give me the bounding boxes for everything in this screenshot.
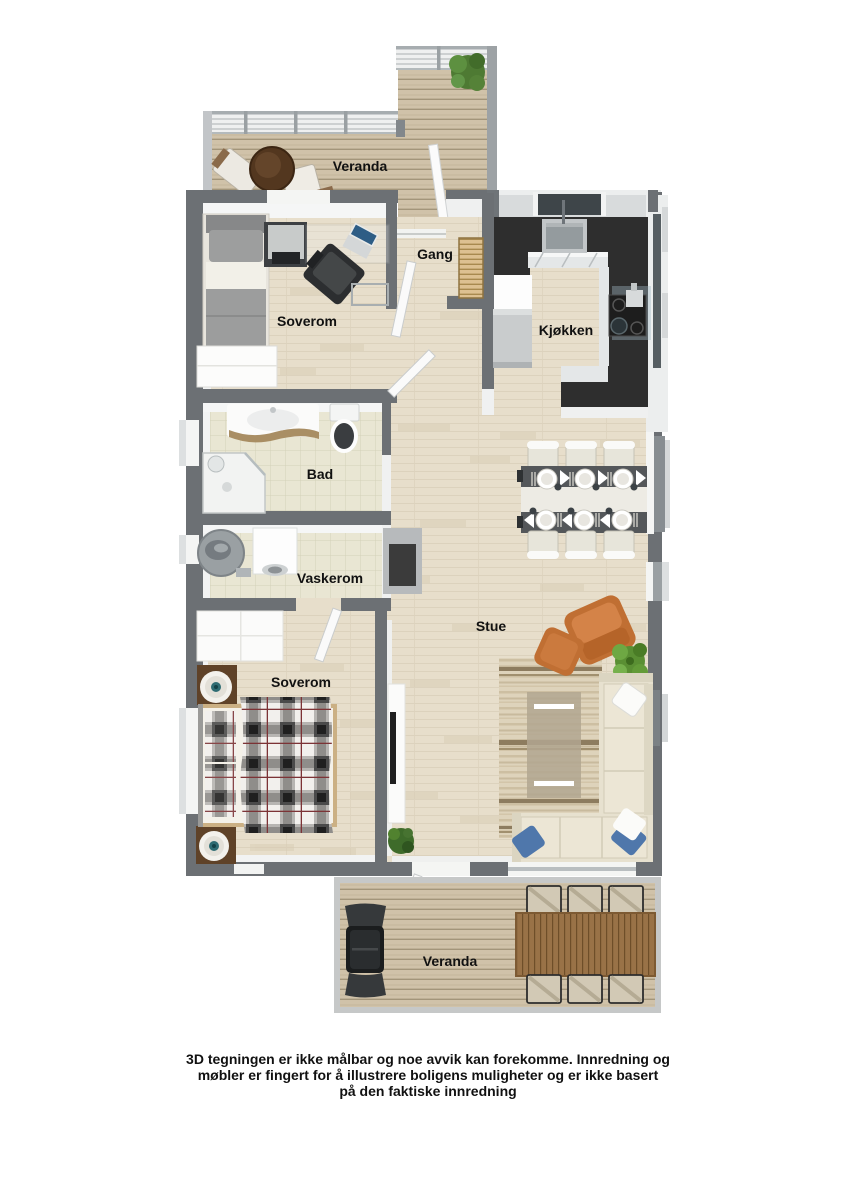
svg-text:Veranda: Veranda [423,953,478,969]
svg-text:Soverom: Soverom [277,313,337,329]
svg-text:Veranda: Veranda [333,158,388,174]
svg-text:Gang: Gang [417,246,453,262]
svg-text:møbler er fingert for å illust: møbler er fingert for å illustrere bolig… [198,1067,659,1083]
svg-text:Bad: Bad [307,466,333,482]
svg-text:3D tegningen er ikke målbar og: 3D tegningen er ikke målbar og noe avvik… [186,1051,670,1067]
svg-text:Stue: Stue [476,618,507,634]
svg-text:Soverom: Soverom [271,674,331,690]
svg-text:Kjøkken: Kjøkken [539,322,593,338]
svg-text:Vaskerom: Vaskerom [297,570,363,586]
svg-text:på den faktiske innredning: på den faktiske innredning [339,1083,516,1099]
